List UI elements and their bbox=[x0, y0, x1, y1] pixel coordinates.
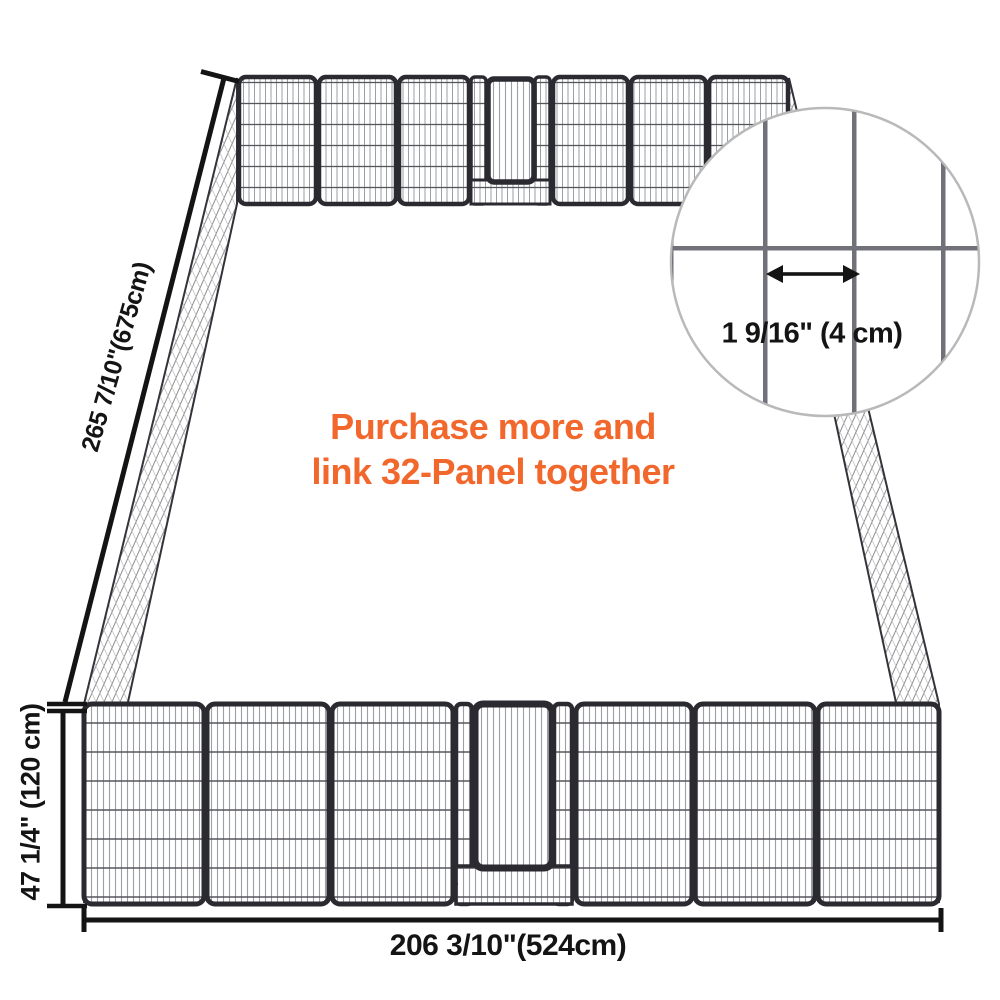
mesh-wire-vertical bbox=[941, 104, 946, 424]
promo-line-2: link 32-Panel together bbox=[311, 449, 674, 494]
fence-panel bbox=[399, 77, 469, 204]
hinge-connector bbox=[452, 881, 458, 887]
hinge-connector bbox=[814, 881, 820, 887]
hinge-connector bbox=[203, 710, 209, 716]
front-gate-door bbox=[475, 704, 552, 868]
fence-panel bbox=[818, 704, 939, 904]
diagram-canvas: 265 7/10"(675cm) 47 1/4" (120 cm) 206 3/… bbox=[0, 0, 1000, 1000]
hinge-connector bbox=[468, 194, 473, 199]
dimension-line bbox=[201, 72, 239, 82]
hinge-connector bbox=[549, 82, 554, 87]
hinge-connector bbox=[315, 82, 320, 87]
playpen-illustration bbox=[0, 0, 1000, 1000]
fence-panel bbox=[239, 77, 316, 204]
fence-panel bbox=[207, 704, 329, 904]
fence-panel bbox=[695, 704, 815, 904]
hinge-connector bbox=[627, 194, 632, 199]
hinge-connector bbox=[572, 710, 578, 716]
hinge-connector bbox=[315, 194, 320, 199]
hinge-connector bbox=[691, 710, 697, 716]
promo-text: Purchase more and link 32-Panel together bbox=[311, 404, 674, 494]
mesh-wire-vertical bbox=[852, 104, 857, 424]
hinge-connector bbox=[572, 881, 578, 887]
hinge-connector bbox=[452, 710, 458, 716]
hinge-connector bbox=[328, 710, 334, 716]
hinge-connector bbox=[395, 82, 400, 87]
fence-panel bbox=[332, 704, 453, 904]
front-width-dimension-label: 206 3/10"(524cm) bbox=[390, 929, 626, 963]
mesh-wire-vertical bbox=[763, 104, 768, 424]
hinge-connector bbox=[468, 82, 473, 87]
hinge-connector bbox=[691, 881, 697, 887]
magnifier-inset-circle bbox=[671, 108, 979, 416]
hinge-connector bbox=[328, 881, 334, 887]
mesh-wire-horizontal bbox=[667, 246, 987, 251]
panel-height-dimension-label: 47 1/4" (120 cm) bbox=[16, 704, 47, 901]
hinge-connector bbox=[627, 82, 632, 87]
mesh-gap-dimension-label: 1 9/16" (4 cm) bbox=[722, 318, 903, 351]
fence-panel bbox=[84, 704, 204, 904]
hinge-connector bbox=[814, 710, 820, 716]
hinge-connector bbox=[549, 194, 554, 199]
front-panel-row bbox=[84, 704, 939, 904]
promo-line-1: Purchase more and bbox=[311, 404, 674, 449]
hinge-connector bbox=[395, 194, 400, 199]
hinge-connector bbox=[203, 881, 209, 887]
hinge-connector bbox=[705, 82, 710, 87]
back-gate-door bbox=[488, 79, 534, 182]
front-gate-bottom-mesh bbox=[456, 866, 572, 904]
fence-panel bbox=[319, 77, 396, 204]
fence-panel bbox=[576, 704, 692, 904]
fence-panel bbox=[553, 77, 628, 204]
